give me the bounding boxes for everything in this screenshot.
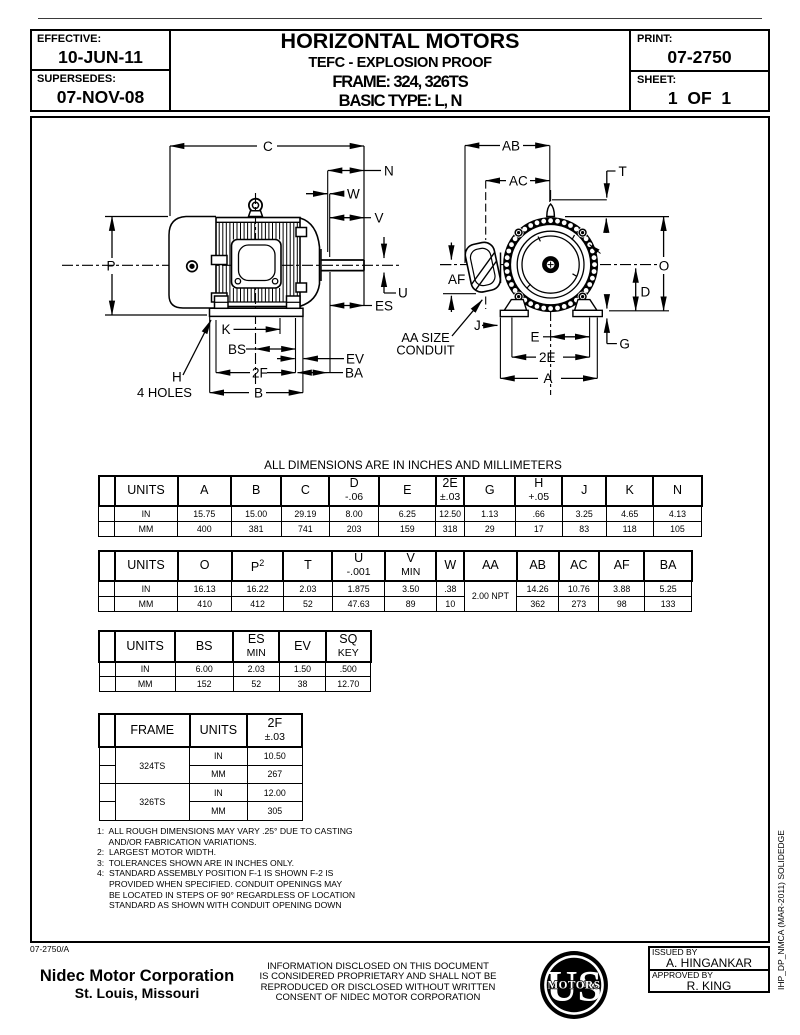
svg-text:W: W <box>347 187 360 202</box>
svg-text:G: G <box>619 336 630 351</box>
svg-text:E: E <box>531 330 540 345</box>
svg-text:2F: 2F <box>252 365 268 380</box>
svg-text:2E: 2E <box>539 350 556 365</box>
svg-text:K: K <box>222 322 231 337</box>
svg-text:U: U <box>398 286 408 301</box>
svg-text:EV: EV <box>346 351 364 366</box>
svg-text:N: N <box>384 163 394 178</box>
svg-text:CONDUIT: CONDUIT <box>396 342 454 357</box>
svg-text:A: A <box>544 371 553 386</box>
svg-text:MOTORS: MOTORS <box>547 980 600 992</box>
svg-text:C: C <box>263 139 273 154</box>
svg-text:H: H <box>172 370 182 385</box>
svg-text:V: V <box>375 211 384 226</box>
svg-text:AF: AF <box>448 272 465 287</box>
svg-text:T: T <box>619 164 627 179</box>
svg-text:J: J <box>474 318 481 333</box>
svg-text:BA: BA <box>345 365 363 380</box>
svg-text:D: D <box>641 285 651 300</box>
svg-text:B: B <box>254 385 263 400</box>
svg-text:ES: ES <box>375 298 393 313</box>
svg-text:O: O <box>659 258 670 273</box>
svg-text:AB: AB <box>502 138 520 153</box>
svg-text:4 HOLES: 4 HOLES <box>137 385 192 400</box>
svg-text:AC: AC <box>509 173 528 188</box>
svg-text:BS: BS <box>228 342 246 357</box>
svg-text:P: P <box>107 258 116 273</box>
